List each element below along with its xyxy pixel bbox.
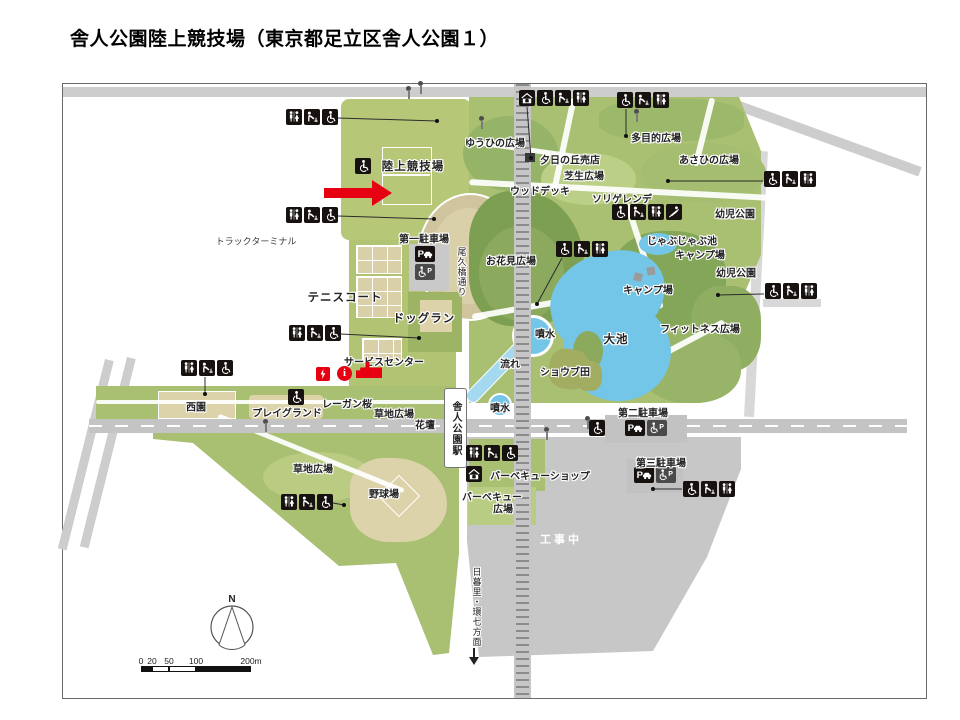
fountain-icon xyxy=(307,325,323,341)
fountain-icon xyxy=(304,207,320,223)
fountain-icon xyxy=(299,494,315,510)
map-label: 噴水 xyxy=(535,326,555,341)
wheelchair-icon xyxy=(355,158,371,174)
map-label: 陸上競技場 xyxy=(382,158,445,174)
facility-icon-group xyxy=(617,92,669,108)
wheelchair-icon xyxy=(217,360,233,376)
lamp-icon xyxy=(417,81,424,94)
wheelchair-icon xyxy=(683,481,699,497)
toilet-icon xyxy=(286,109,302,125)
map-label: トラックターミナル xyxy=(216,235,297,248)
stadium-pointer-arrowhead xyxy=(372,180,392,206)
compass-north-label: N xyxy=(228,594,235,605)
fountain-icon xyxy=(701,481,717,497)
map-label: 大池 xyxy=(604,331,629,347)
toilet-icon xyxy=(653,92,669,108)
scale-segment xyxy=(152,666,169,672)
facility-icon-group xyxy=(765,283,817,299)
direction-arrow-icon xyxy=(469,648,479,666)
shop-icon xyxy=(466,466,482,482)
facility-icon-group xyxy=(556,241,608,257)
wheelchair-icon xyxy=(764,171,780,187)
map-label: 西園 xyxy=(186,399,206,414)
shop-icon xyxy=(519,90,535,106)
map-label: 日暮里・環七方面 xyxy=(471,567,484,647)
facility-icon-group xyxy=(466,466,482,482)
map-label: 花壇 xyxy=(415,417,435,432)
fountain-icon xyxy=(199,360,215,376)
facility-icon-group xyxy=(415,264,435,280)
toilet-icon xyxy=(281,494,297,510)
facility-icon-group xyxy=(355,158,371,174)
map-label: レーガン桜 xyxy=(322,396,372,411)
toilet-icon xyxy=(286,207,302,223)
facility-icon-group xyxy=(466,445,518,461)
map-label: プレイグランド xyxy=(252,405,322,420)
wheelchair-icon xyxy=(502,445,518,461)
facility-icon-group xyxy=(289,325,341,341)
scale-bar xyxy=(141,666,251,672)
map-label: フィットネス広場 xyxy=(660,321,740,336)
park-path xyxy=(96,400,456,404)
map-label: お花見広場 xyxy=(486,253,536,268)
pcar-icon xyxy=(415,246,435,262)
map-label: 野球場 xyxy=(369,486,399,501)
scale-tick-label: 0 xyxy=(139,656,144,666)
facility-icon-group xyxy=(589,420,605,436)
map-label: 多目的広場 xyxy=(631,130,681,145)
page: 舎人公園陸上競技場（東京都足立区舎人公園１） xyxy=(0,0,960,720)
station-box: 舎人公園駅 xyxy=(444,388,467,468)
toilet-icon xyxy=(648,204,664,220)
wheelchair-icon xyxy=(556,241,572,257)
map-label: ソリゲレンデ xyxy=(592,191,652,206)
scale-tick-label: 50 xyxy=(164,656,173,666)
railway-line xyxy=(514,84,531,698)
map-label: キャンプ場 xyxy=(675,247,725,262)
aed-icon xyxy=(316,367,330,381)
main-road xyxy=(89,419,907,433)
facility-icon-group xyxy=(288,389,304,405)
map-label: 広場 xyxy=(493,501,513,516)
map-label: 幼児公園 xyxy=(716,265,756,280)
camp-tent-2 xyxy=(646,266,655,275)
info-icon: i xyxy=(337,366,352,381)
map-label: 幼児公園 xyxy=(715,206,755,221)
lamp-icon xyxy=(262,419,269,432)
facility-icon-group xyxy=(683,481,735,497)
stadium-pitch-midline xyxy=(382,174,430,176)
facility-icon-group xyxy=(286,207,338,223)
wheelchair-icon xyxy=(617,92,633,108)
map-label: テニスコート xyxy=(308,289,383,305)
wheelchair-icon xyxy=(537,90,553,106)
top-road xyxy=(63,87,926,97)
facility-icon-group xyxy=(612,204,682,220)
fountain-icon xyxy=(782,171,798,187)
tennis-courts-1 xyxy=(356,245,402,274)
map-label: 草地広場 xyxy=(293,461,333,476)
facility-icon-group xyxy=(519,90,589,106)
scale-segment xyxy=(196,666,251,672)
fountain-icon xyxy=(783,283,799,299)
map-label: 尾久橋通り xyxy=(456,247,469,297)
lamp-icon xyxy=(633,109,640,122)
wheelchair-icon xyxy=(317,494,333,510)
scale-tick-label: 200m xyxy=(240,656,261,666)
facility-icon-group xyxy=(625,420,667,436)
facility-icon-group xyxy=(764,171,816,187)
wheelchair-icon xyxy=(325,325,341,341)
map-label: サービスセンター xyxy=(344,354,424,369)
toilet-icon xyxy=(181,360,197,376)
fountain-icon xyxy=(574,241,590,257)
compass: N xyxy=(206,596,258,650)
pcar-icon xyxy=(625,420,645,436)
pwheel-icon xyxy=(415,264,435,280)
lamp-icon xyxy=(478,116,485,129)
map-label: ゆうひの広場 xyxy=(465,135,525,150)
fountain-icon xyxy=(555,90,571,106)
scale-tick-label: 100 xyxy=(189,656,203,666)
map-label: 芝生広場 xyxy=(564,168,604,183)
facility-icon-group xyxy=(181,360,233,376)
map-label: 流れ xyxy=(500,356,520,371)
fountain-icon xyxy=(630,204,646,220)
map-label: ウッドデッキ xyxy=(510,183,570,198)
shop-building xyxy=(525,153,535,162)
map-label: あさひの広場 xyxy=(679,152,739,167)
scale-segment xyxy=(169,666,196,672)
map-label: 第二駐車場 xyxy=(618,405,668,420)
toilet-icon xyxy=(719,481,735,497)
fountain-icon xyxy=(304,109,320,125)
map-label: 工事中 xyxy=(540,531,582,547)
toilet-icon xyxy=(466,445,482,461)
east-stub-road xyxy=(763,299,821,307)
map-label: ショウブ田 xyxy=(540,364,590,379)
map-label: バーベキュー xyxy=(462,489,522,504)
map-label: 噴水 xyxy=(490,400,510,415)
map-label: 草地広場 xyxy=(374,406,414,421)
stadium-pointer-arrow xyxy=(324,188,374,198)
wheelchair-icon xyxy=(288,389,304,405)
facility-icon-group xyxy=(286,109,338,125)
wheelchair-icon xyxy=(765,283,781,299)
scale-tick-label: 20 xyxy=(147,656,156,666)
toilet-icon xyxy=(801,283,817,299)
map-label: 第三駐車場 xyxy=(636,455,686,470)
sled-icon xyxy=(666,204,682,220)
wheelchair-icon xyxy=(322,109,338,125)
fountain-icon xyxy=(635,92,651,108)
toilet-icon xyxy=(800,171,816,187)
map-label: バーベキューショップ xyxy=(490,468,590,483)
map-label: じゃぶじゃぶ池 xyxy=(647,233,717,248)
page-title: 舎人公園陸上競技場（東京都足立区舎人公園１） xyxy=(70,24,499,51)
wheelchair-icon xyxy=(322,207,338,223)
fountain-icon xyxy=(484,445,500,461)
map-label: 夕日の丘売店 xyxy=(540,152,600,167)
lamp-icon xyxy=(543,427,550,440)
map-label: 第一駐車場 xyxy=(399,231,449,246)
scale-segment xyxy=(141,666,152,672)
lamp-icon xyxy=(405,86,412,99)
pwheel-icon xyxy=(647,420,667,436)
station-label: 舎人公園駅 xyxy=(448,401,463,456)
wheelchair-icon xyxy=(589,420,605,436)
facility-icon-group xyxy=(281,494,333,510)
map-label: ドッグラン xyxy=(393,310,456,326)
map-label: キャンプ場 xyxy=(623,282,673,297)
wheelchair-icon xyxy=(612,204,628,220)
facility-icon-group xyxy=(415,246,435,262)
toilet-icon xyxy=(573,90,589,106)
toilet-icon xyxy=(289,325,305,341)
toilet-icon xyxy=(592,241,608,257)
